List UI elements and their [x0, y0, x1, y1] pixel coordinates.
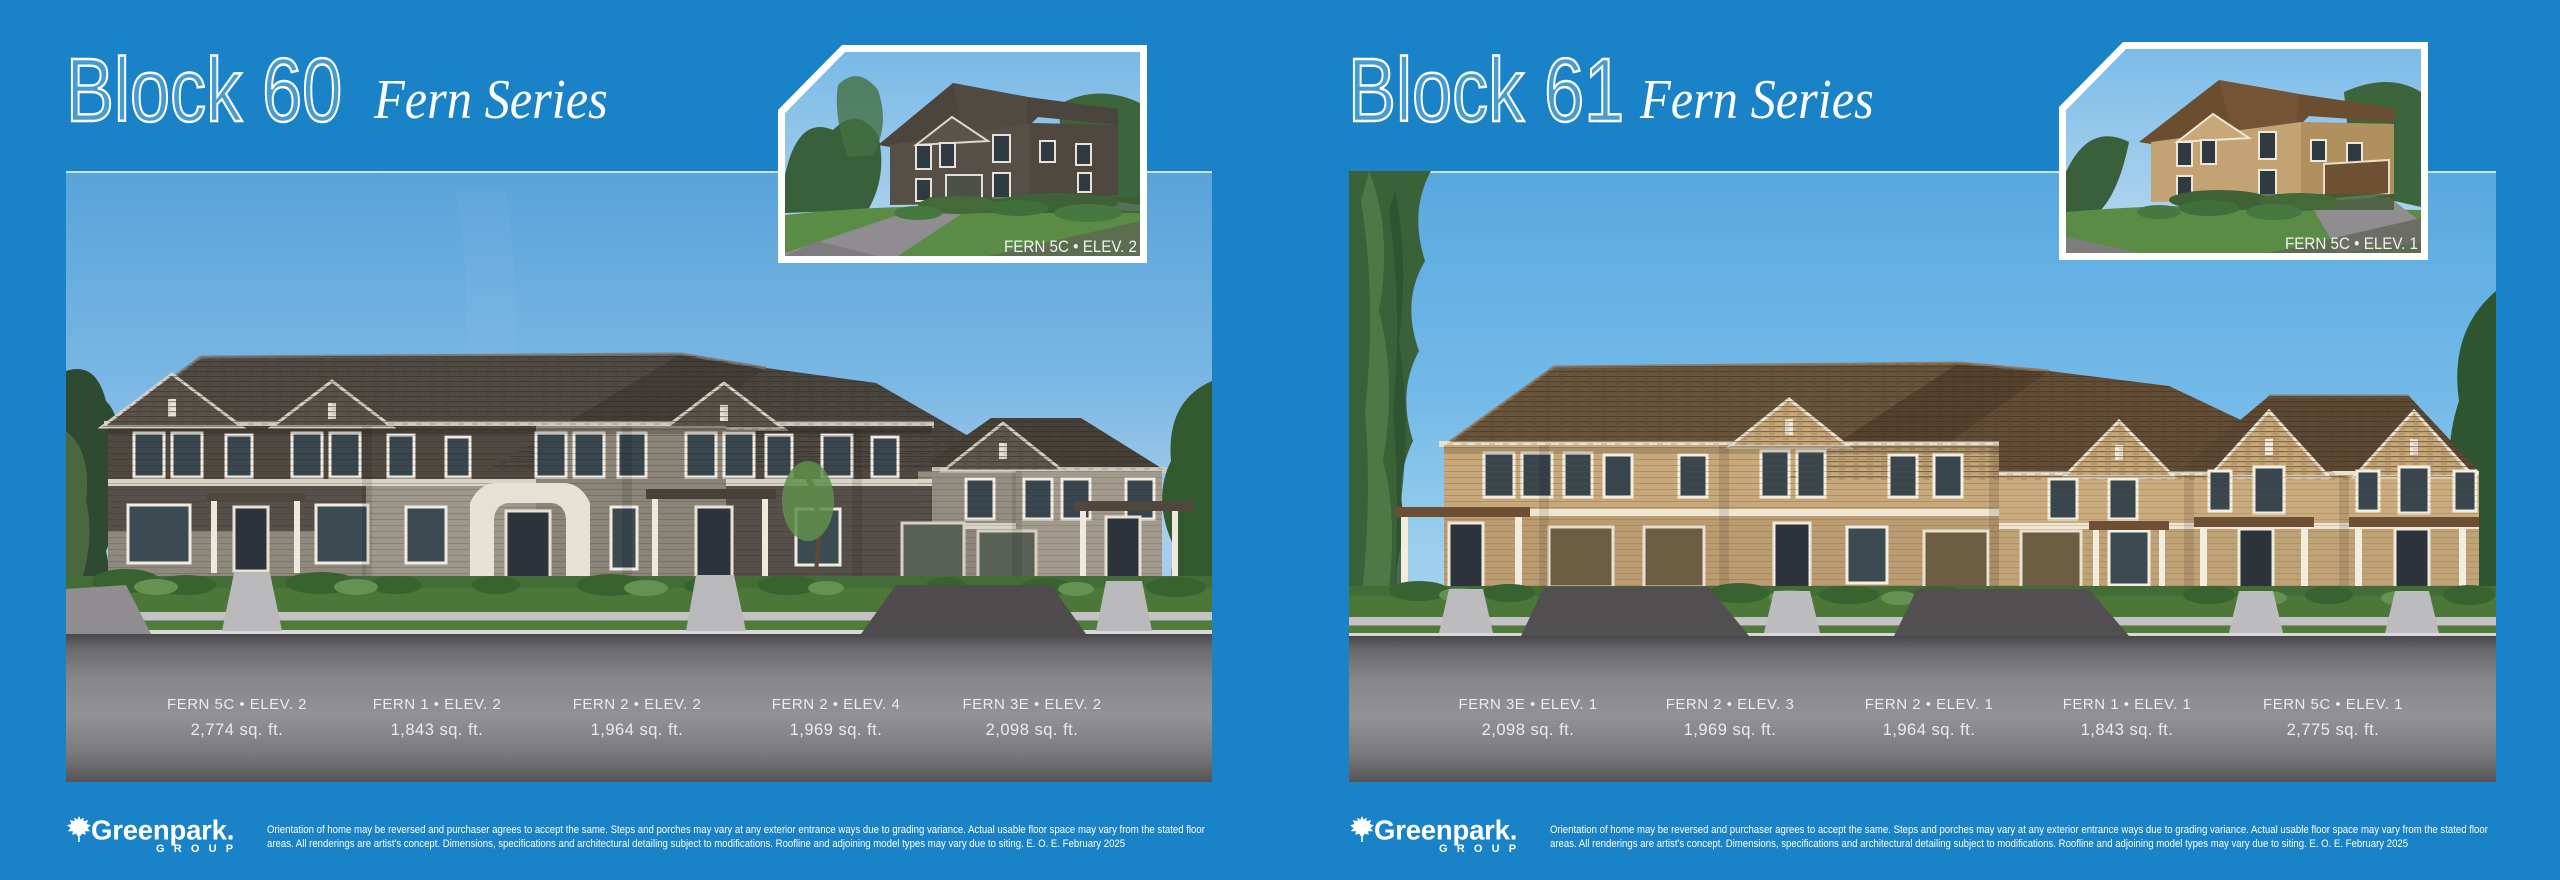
svg-text:FERN 5C • ELEV. 2: FERN 5C • ELEV. 2 [1004, 237, 1137, 256]
svg-text:FERN 5C • ELEV. 1: FERN 5C • ELEV. 1 [2285, 234, 2418, 253]
svg-text:Greenpark.: Greenpark. [1374, 815, 1517, 846]
svg-text:Greenpark.: Greenpark. [91, 815, 234, 846]
svg-text:GROUP: GROUP [1439, 843, 1525, 855]
svg-text:GROUP: GROUP [156, 843, 242, 855]
